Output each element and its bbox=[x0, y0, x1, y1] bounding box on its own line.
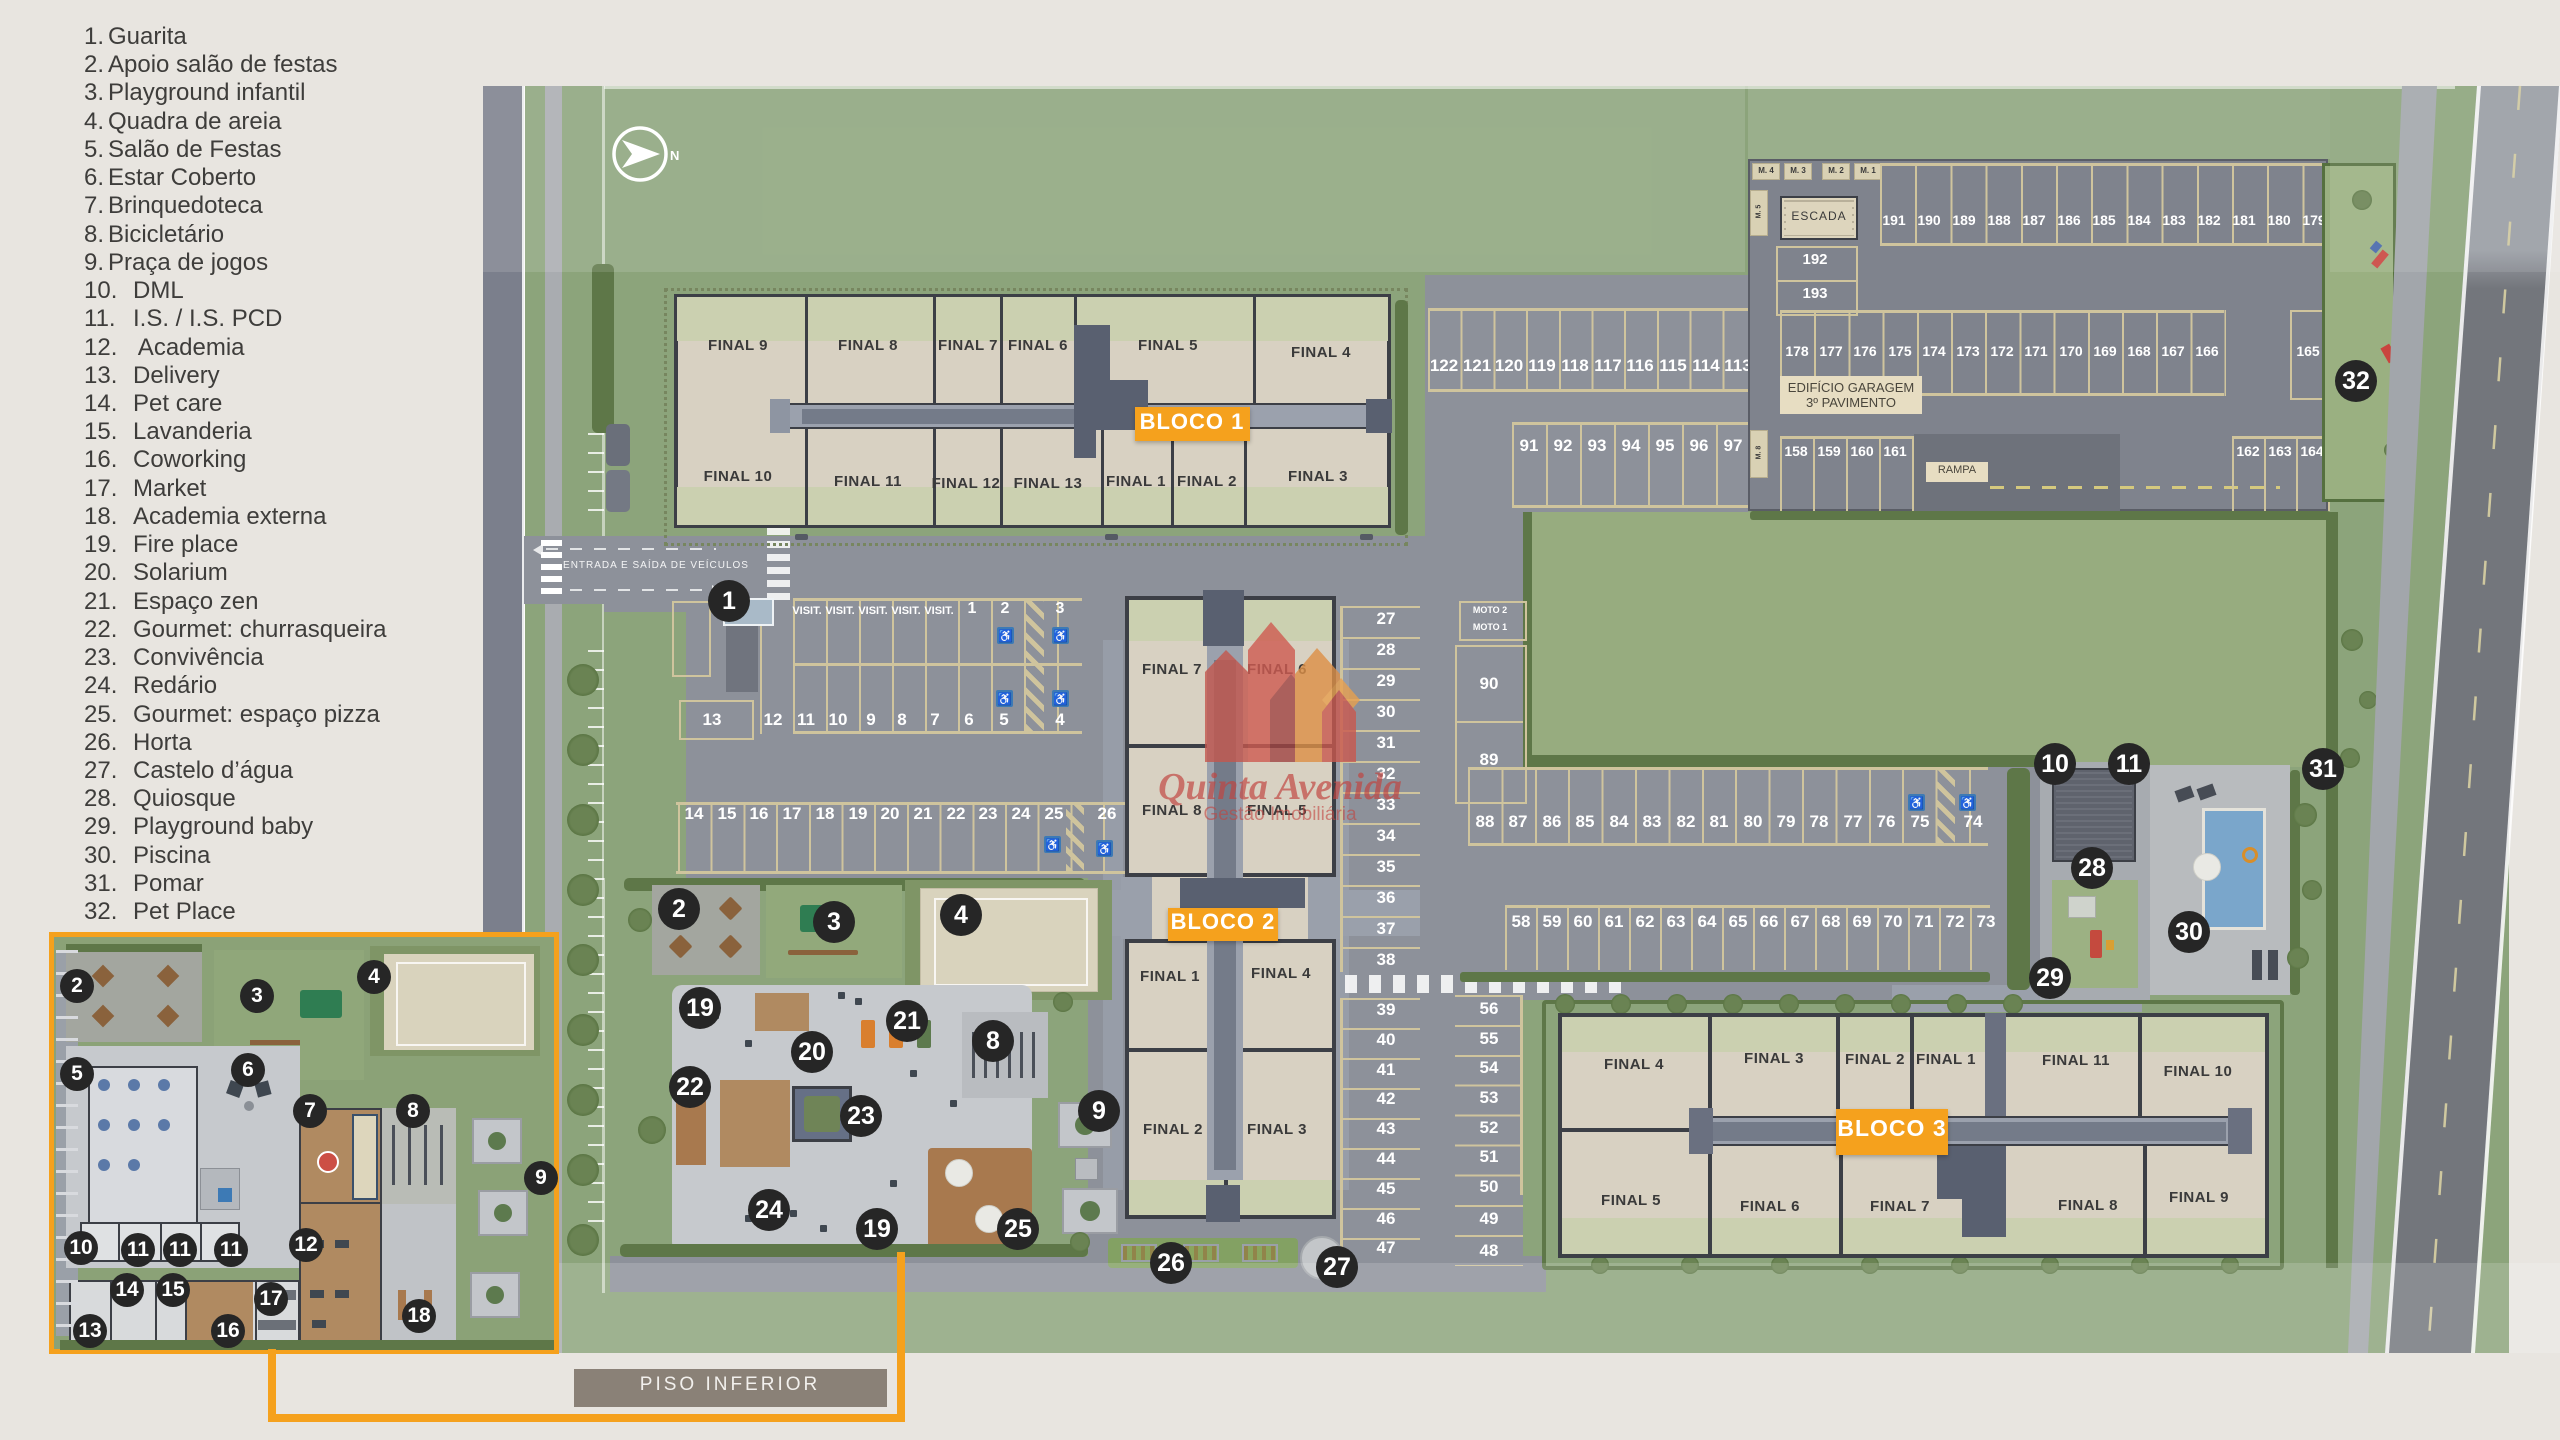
svg-text:Gestão Imobiliária: Gestão Imobiliária bbox=[1203, 804, 1357, 825]
svg-text:Quinta Avenida: Quinta Avenida bbox=[1158, 766, 1402, 808]
svg-text:N: N bbox=[670, 148, 679, 163]
